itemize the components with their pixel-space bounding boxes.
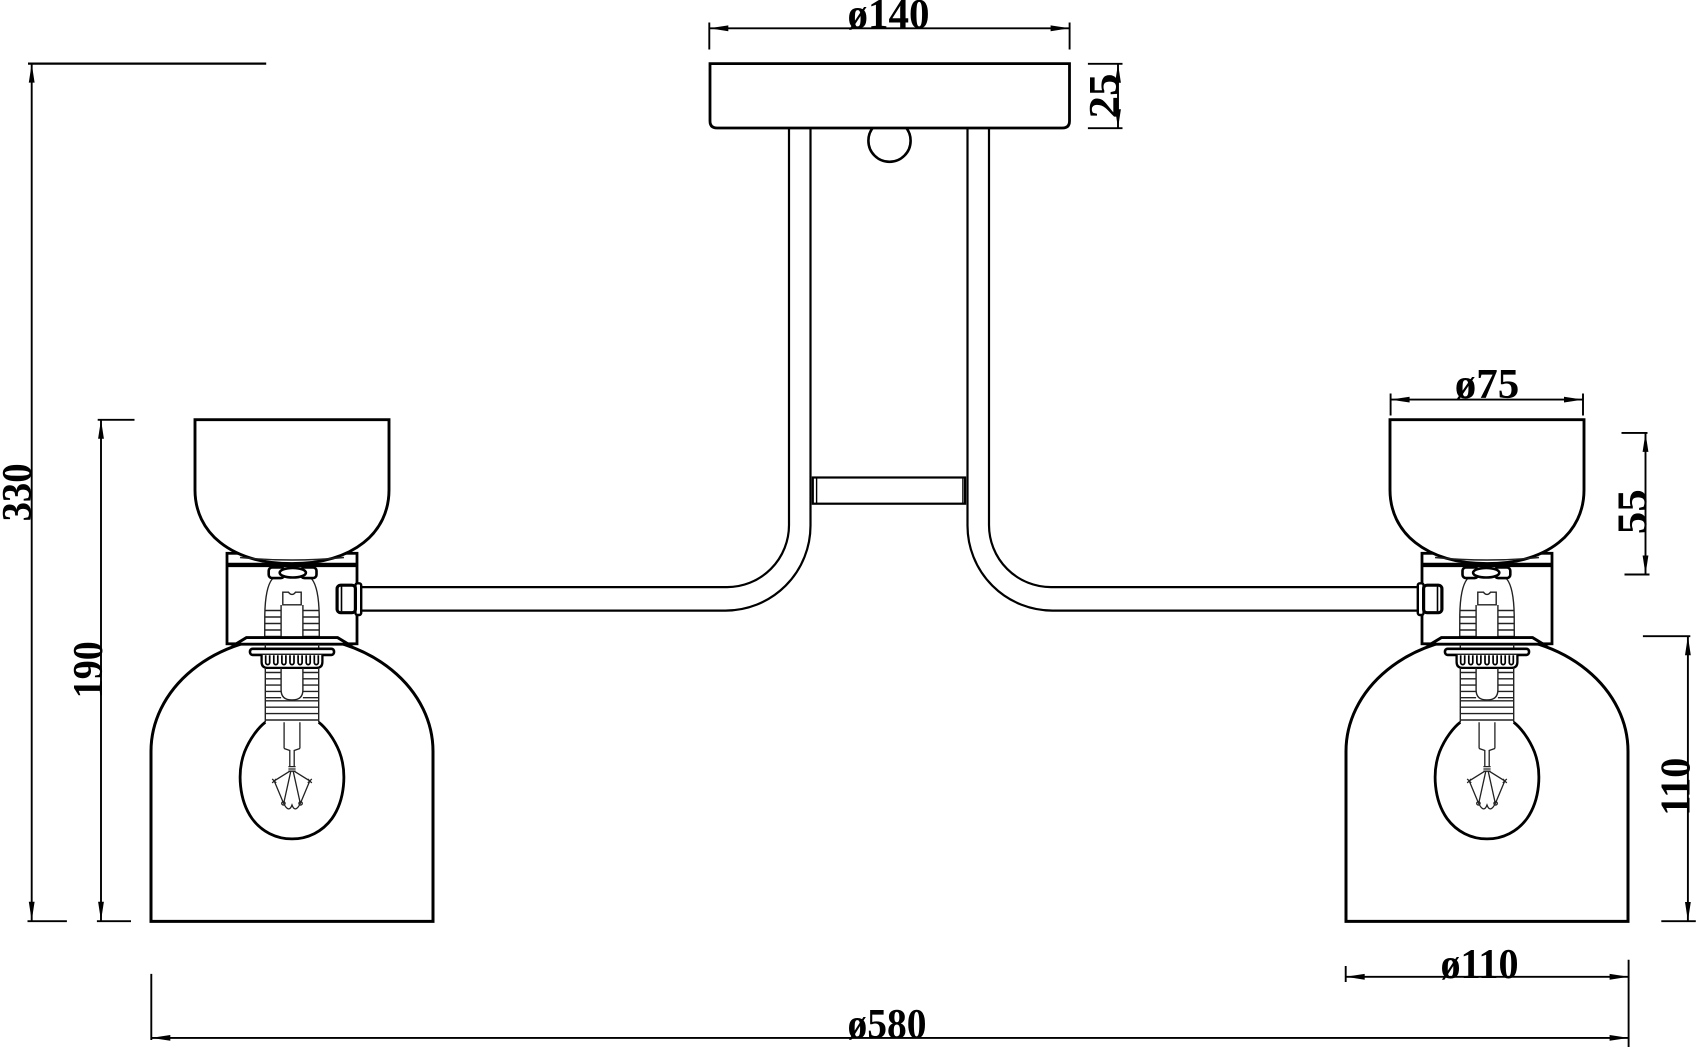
svg-text:190: 190 <box>66 641 112 698</box>
svg-text:330: 330 <box>0 463 41 521</box>
svg-text:55: 55 <box>1611 489 1657 534</box>
svg-text:25: 25 <box>1082 74 1128 119</box>
svg-text:ø110: ø110 <box>1441 942 1519 988</box>
svg-text:ø580: ø580 <box>848 1002 927 1048</box>
svg-text:ø140: ø140 <box>848 0 930 38</box>
svg-text:ø75: ø75 <box>1455 362 1520 408</box>
svg-text:110: 110 <box>1654 758 1696 816</box>
